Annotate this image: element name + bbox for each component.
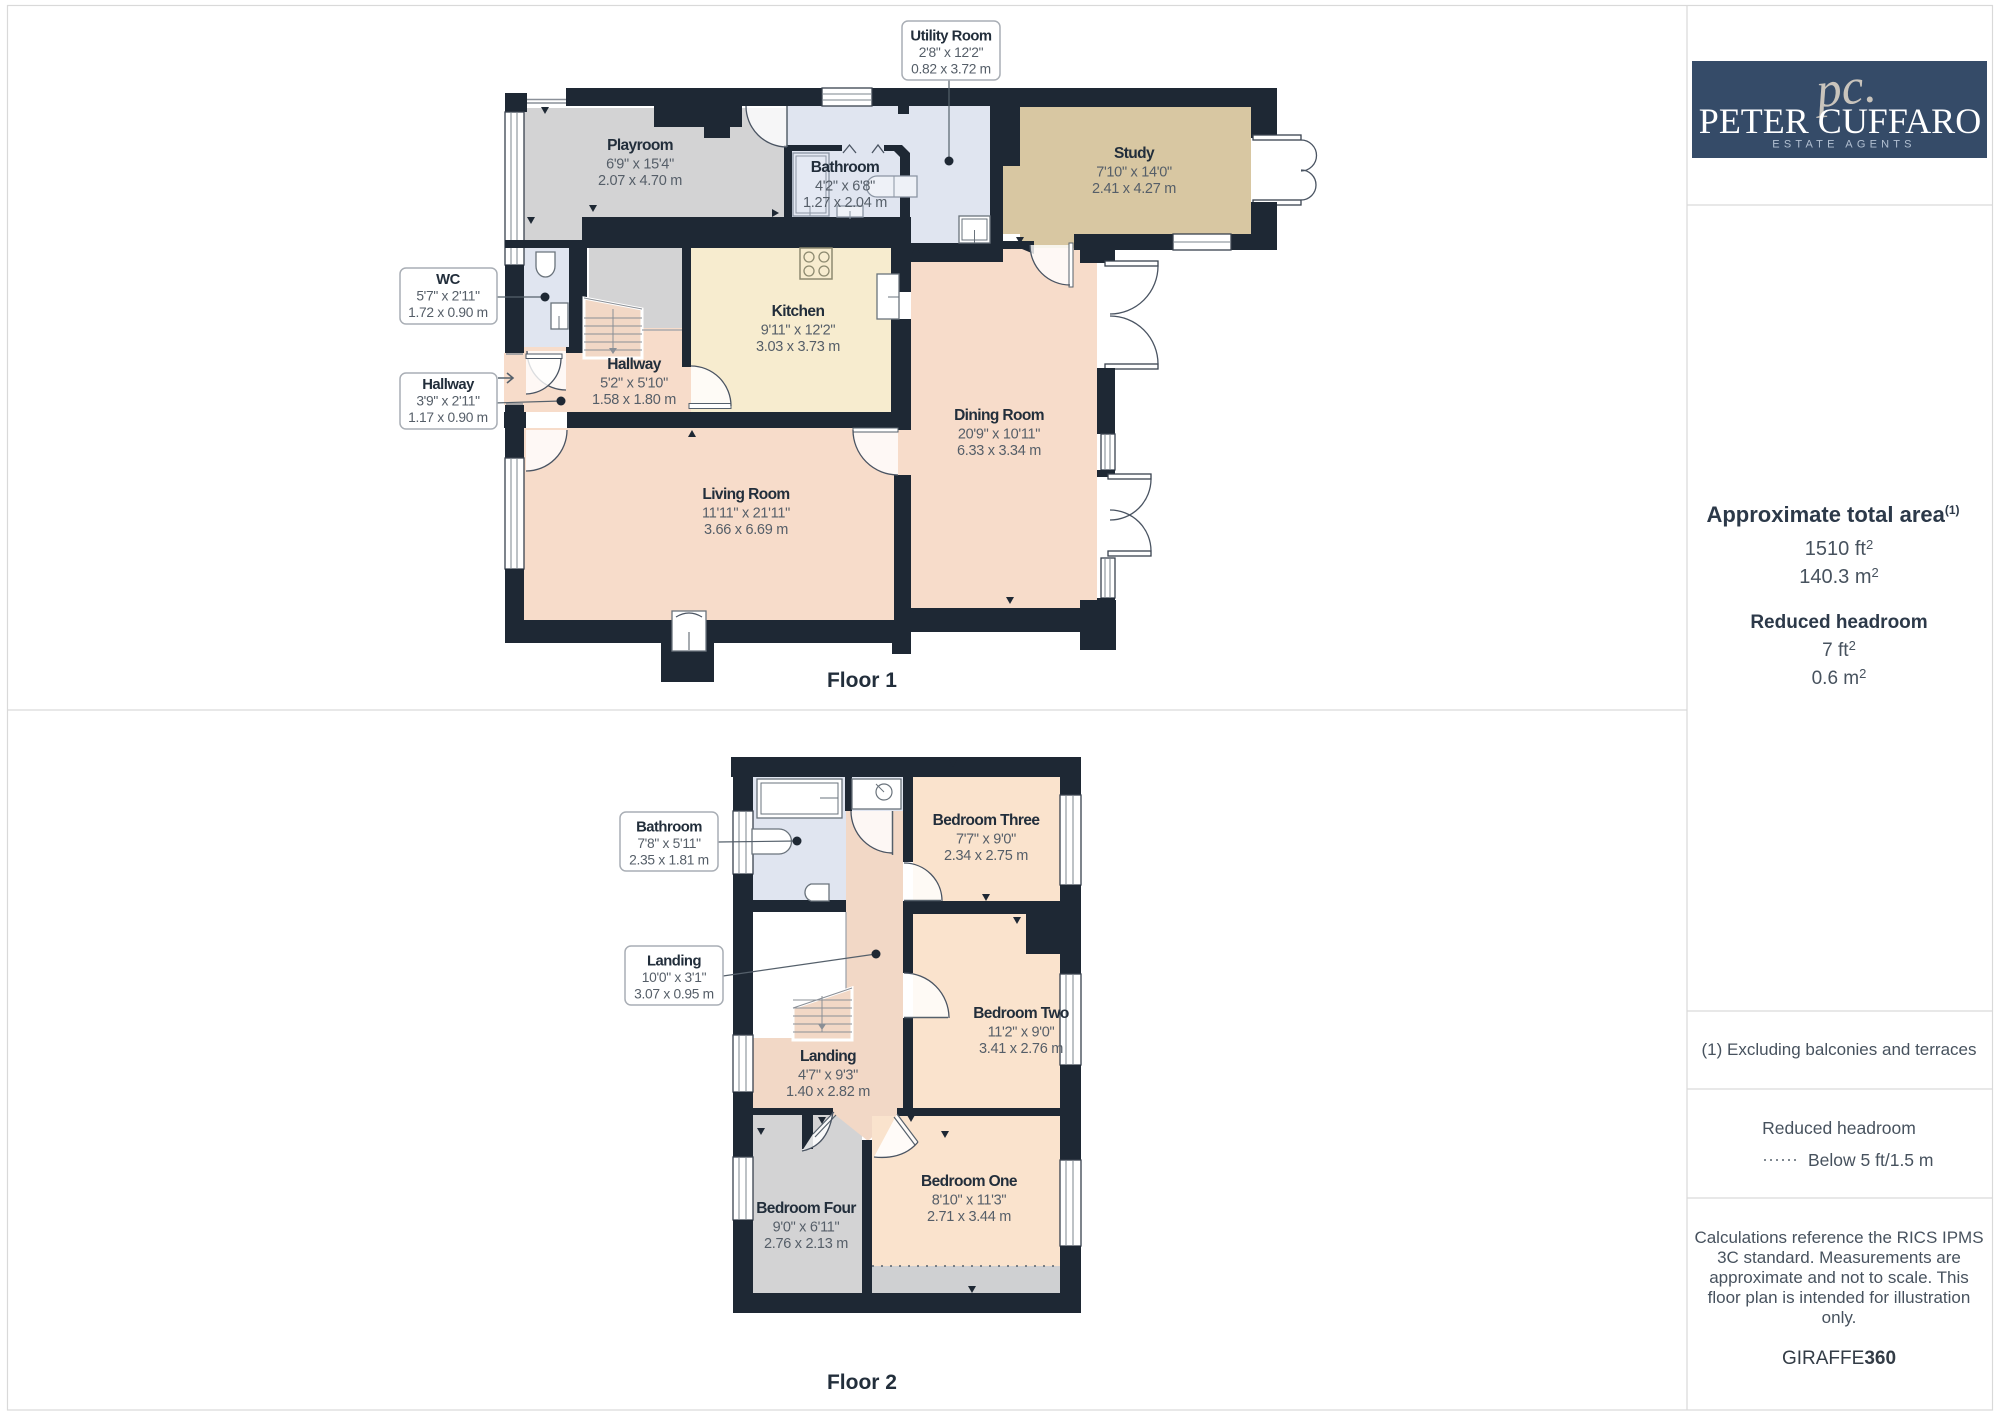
svg-text:10'0" x 3'1": 10'0" x 3'1"	[642, 970, 707, 985]
svg-text:Study: Study	[1114, 145, 1155, 162]
svg-text:9'11" x 12'2": 9'11" x 12'2"	[761, 323, 836, 339]
svg-text:140.3 m2: 140.3 m2	[1799, 565, 1879, 588]
svg-text:Hallway: Hallway	[607, 356, 662, 373]
svg-text:GIRAFFE360: GIRAFFE360	[1782, 1348, 1896, 1369]
svg-text:6'9" x 15'4": 6'9" x 15'4"	[606, 157, 674, 173]
svg-text:5'7" x 2'11": 5'7" x 2'11"	[416, 289, 480, 304]
svg-text:7'7" x 9'0": 7'7" x 9'0"	[956, 832, 1016, 848]
svg-text:1510 ft2: 1510 ft2	[1805, 537, 1873, 560]
svg-text:3.07 x 0.95 m: 3.07 x 0.95 m	[634, 987, 714, 1002]
svg-text:Reduced headroom: Reduced headroom	[1762, 1118, 1916, 1138]
svg-text:ESTATE AGENTS: ESTATE AGENTS	[1772, 139, 1915, 151]
svg-text:Bedroom Three: Bedroom Three	[933, 812, 1041, 829]
svg-text:approximate and not to scale.: approximate and not to scale. This	[1709, 1268, 1969, 1287]
svg-text:floor plan is intended for ill: floor plan is intended for illustration	[1708, 1288, 1971, 1307]
svg-text:Hallway: Hallway	[422, 377, 475, 393]
svg-text:2.71 x 3.44 m: 2.71 x 3.44 m	[927, 1209, 1011, 1225]
svg-text:Dining Room: Dining Room	[954, 407, 1044, 424]
svg-text:Below 5 ft/1.5 m: Below 5 ft/1.5 m	[1808, 1150, 1933, 1170]
svg-text:Landing: Landing	[647, 954, 701, 970]
svg-text:Kitchen: Kitchen	[772, 303, 825, 320]
svg-text:Bathroom: Bathroom	[811, 159, 879, 176]
svg-text:WC: WC	[436, 272, 460, 288]
svg-text:2.34 x 2.75 m: 2.34 x 2.75 m	[944, 848, 1028, 864]
svg-text:1.58 x 1.80 m: 1.58 x 1.80 m	[592, 392, 676, 408]
svg-text:1.27 x 2.04 m: 1.27 x 2.04 m	[803, 195, 887, 211]
svg-text:PETER CUFFARO: PETER CUFFARO	[1699, 101, 1981, 141]
svg-text:9'0" x 6'11": 9'0" x 6'11"	[773, 1220, 840, 1236]
svg-text:2.76 x 2.13 m: 2.76 x 2.13 m	[764, 1236, 848, 1252]
svg-text:2.07 x 4.70 m: 2.07 x 4.70 m	[598, 173, 682, 189]
svg-text:5'2" x 5'10": 5'2" x 5'10"	[600, 376, 668, 392]
svg-text:only.: only.	[1822, 1308, 1857, 1327]
svg-text:(1) Excluding balconies and te: (1) Excluding balconies and terraces	[1702, 1040, 1977, 1059]
svg-text:7'10" x 14'0": 7'10" x 14'0"	[1096, 165, 1172, 181]
svg-text:4'7" x 9'3": 4'7" x 9'3"	[798, 1068, 858, 1084]
svg-text:Landing: Landing	[800, 1048, 856, 1065]
svg-text:Floor 1: Floor 1	[827, 669, 897, 692]
svg-text:0.82 x 3.72 m: 0.82 x 3.72 m	[911, 62, 991, 77]
svg-text:3.41 x 2.76 m: 3.41 x 2.76 m	[979, 1041, 1063, 1057]
svg-text:Floor 2: Floor 2	[827, 1371, 897, 1394]
svg-text:Bedroom Two: Bedroom Two	[973, 1005, 1069, 1022]
svg-text:3.03 x 3.73 m: 3.03 x 3.73 m	[756, 339, 840, 355]
svg-text:3'9" x 2'11": 3'9" x 2'11"	[416, 394, 480, 409]
svg-text:2.35 x 1.81 m: 2.35 x 1.81 m	[629, 853, 709, 868]
svg-text:11'2" x 9'0": 11'2" x 9'0"	[988, 1025, 1055, 1041]
svg-text:Bedroom One: Bedroom One	[921, 1173, 1018, 1190]
svg-text:11'11" x 21'11": 11'11" x 21'11"	[702, 506, 790, 522]
svg-text:20'9" x 10'11": 20'9" x 10'11"	[958, 427, 1040, 443]
svg-text:7'8" x 5'11": 7'8" x 5'11"	[637, 836, 701, 851]
svg-text:8'10" x 11'3": 8'10" x 11'3"	[932, 1193, 1007, 1209]
svg-text:1.72 x 0.90 m: 1.72 x 0.90 m	[408, 305, 488, 320]
svg-text:Reduced headroom: Reduced headroom	[1750, 612, 1927, 633]
svg-text:4'2" x 6'8": 4'2" x 6'8"	[815, 179, 875, 195]
svg-text:2'8" x 12'2": 2'8" x 12'2"	[919, 45, 984, 60]
svg-text:Calculations reference the RIC: Calculations reference the RICS IPMS	[1694, 1228, 1983, 1247]
svg-text:3.66 x 6.69 m: 3.66 x 6.69 m	[704, 522, 788, 538]
svg-text:0.6 m2: 0.6 m2	[1812, 666, 1867, 689]
svg-text:Utility Room: Utility Room	[910, 29, 991, 45]
svg-text:Living Room: Living Room	[702, 486, 789, 503]
svg-text:Bathroom: Bathroom	[636, 820, 702, 836]
svg-text:Playroom: Playroom	[607, 137, 673, 154]
svg-text:2.41 x 4.27 m: 2.41 x 4.27 m	[1092, 181, 1176, 197]
svg-text:6.33 x 3.34 m: 6.33 x 3.34 m	[957, 443, 1041, 459]
svg-text:1.40 x 2.82 m: 1.40 x 2.82 m	[786, 1084, 870, 1100]
svg-text:Approximate total area(1): Approximate total area(1)	[1706, 502, 1959, 527]
svg-text:1.17 x 0.90 m: 1.17 x 0.90 m	[408, 410, 488, 425]
svg-text:Bedroom Four: Bedroom Four	[756, 1200, 856, 1217]
svg-text:3C standard. Measurements are: 3C standard. Measurements are	[1717, 1248, 1961, 1267]
